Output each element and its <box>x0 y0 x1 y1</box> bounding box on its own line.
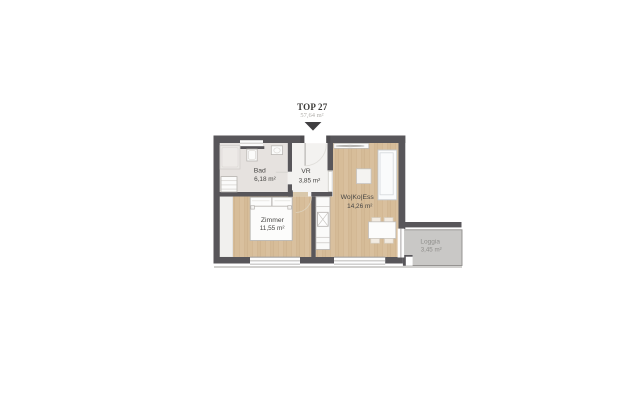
svg-text:TOP 27: TOP 27 <box>297 102 328 112</box>
svg-text:Zimmer: Zimmer <box>261 217 285 224</box>
svg-text:6,18 m²: 6,18 m² <box>254 176 276 183</box>
svg-text:Loggia: Loggia <box>420 238 440 245</box>
svg-text:14,26 m²: 14,26 m² <box>347 203 372 210</box>
svg-text:VR: VR <box>301 168 311 175</box>
svg-text:Bad: Bad <box>254 168 266 175</box>
svg-text:57,64 m²: 57,64 m² <box>300 112 323 119</box>
svg-text:11,55 m²: 11,55 m² <box>260 225 285 232</box>
svg-text:3,45 m²: 3,45 m² <box>421 247 442 254</box>
svg-text:3,85 m²: 3,85 m² <box>299 178 321 185</box>
svg-text:Wo|Ko|Ess: Wo|Ko|Ess <box>341 194 375 201</box>
